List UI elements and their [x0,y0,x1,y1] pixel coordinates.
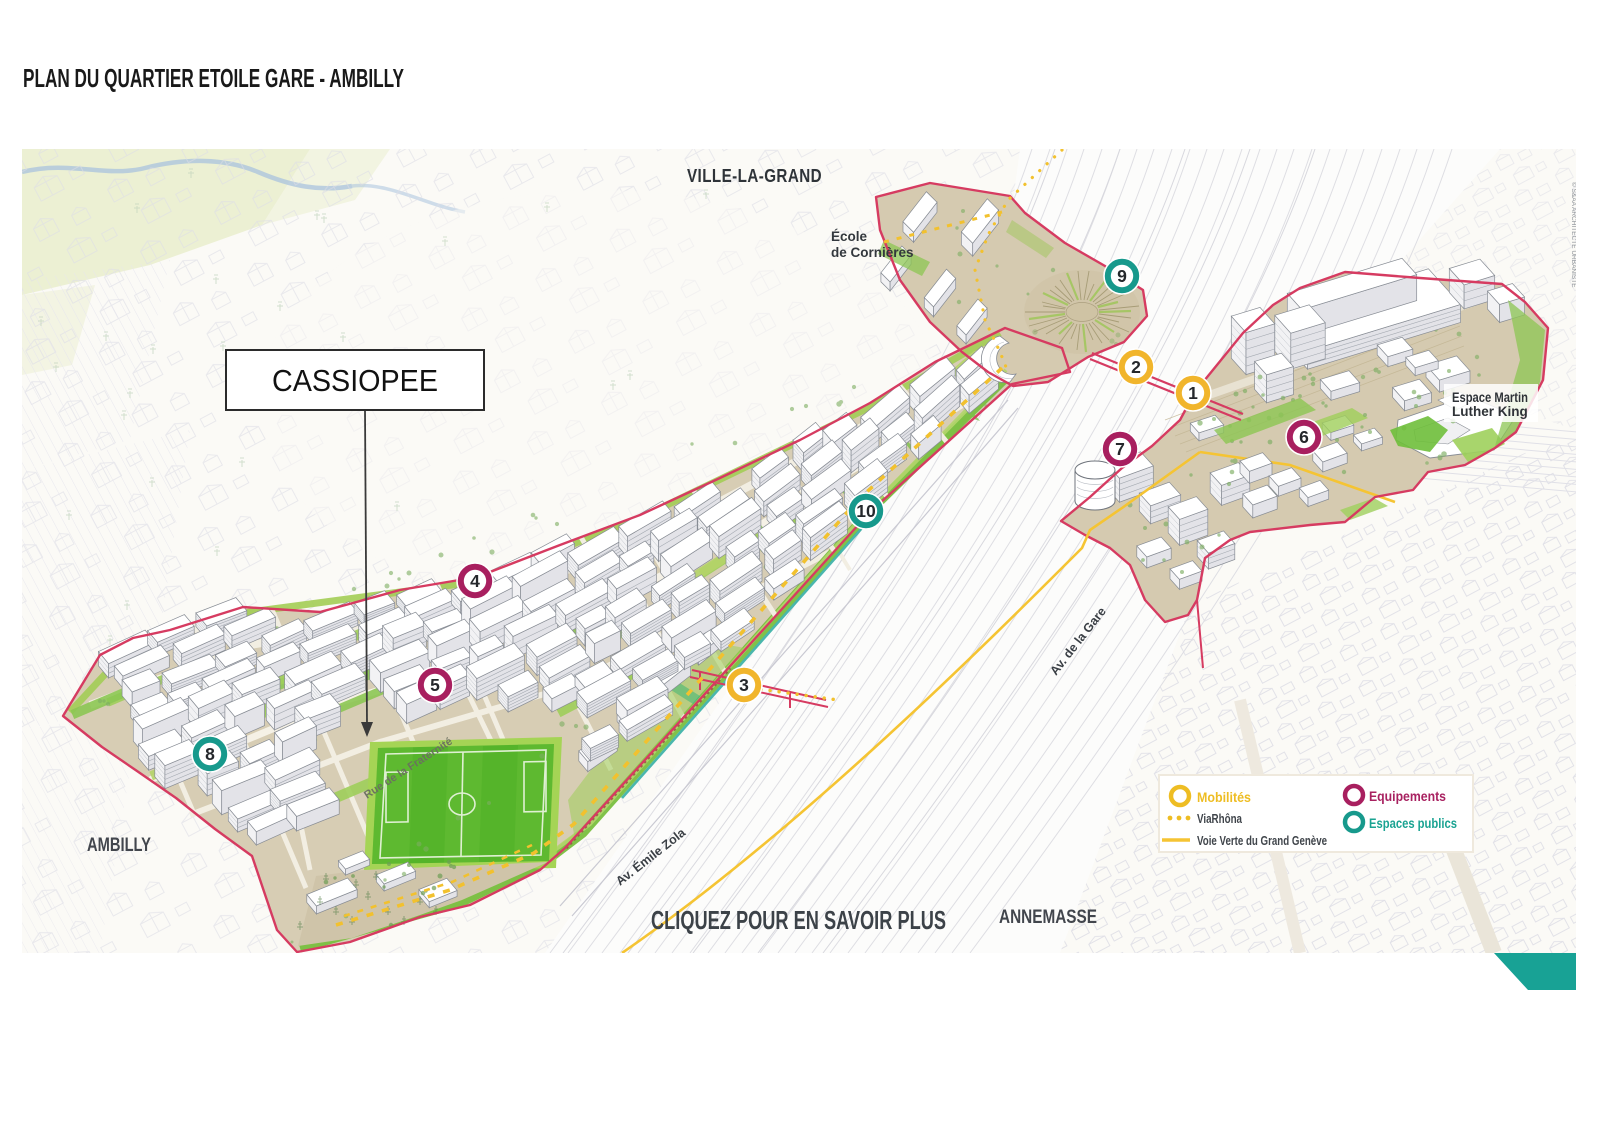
svg-text:6: 6 [1299,427,1309,447]
svg-text:ViaRhôna: ViaRhôna [1197,812,1243,826]
svg-text:Voie Verte du Grand Genève: Voie Verte du Grand Genève [1197,834,1327,848]
svg-text:7: 7 [1115,439,1125,459]
svg-text:Equipements: Equipements [1369,789,1446,804]
svg-text:de Cornières: de Cornières [831,245,914,260]
svg-text:© S&AA ARCHITECTE URBANISTE: © S&AA ARCHITECTE URBANISTE [1570,182,1578,288]
svg-text:5: 5 [430,675,440,695]
svg-text:4: 4 [470,571,480,591]
svg-text:VILLE-LA-GRAND: VILLE-LA-GRAND [687,166,822,186]
svg-text:9: 9 [1117,266,1127,286]
svg-text:AMBILLY: AMBILLY [87,835,151,856]
svg-text:CASSIOPEE: CASSIOPEE [272,363,438,398]
svg-text:École: École [831,229,868,244]
svg-text:Espaces publics: Espaces publics [1369,816,1457,831]
svg-text:8: 8 [205,744,215,764]
svg-text:Luther King: Luther King [1452,404,1528,419]
svg-text:1: 1 [1188,383,1198,403]
svg-text:2: 2 [1131,357,1141,377]
svg-text:ANNEMASSE: ANNEMASSE [999,907,1097,928]
svg-text:CLIQUEZ POUR EN SAVOIR PLUS: CLIQUEZ POUR EN SAVOIR PLUS [651,905,946,935]
svg-text:PLAN DU QUARTIER ETOILE GARE -: PLAN DU QUARTIER ETOILE GARE - AMBILLY [23,63,404,93]
svg-text:3: 3 [739,675,749,695]
svg-text:Espace Martin: Espace Martin [1452,390,1528,405]
svg-text:10: 10 [856,501,876,521]
svg-text:Mobilités: Mobilités [1197,790,1251,805]
